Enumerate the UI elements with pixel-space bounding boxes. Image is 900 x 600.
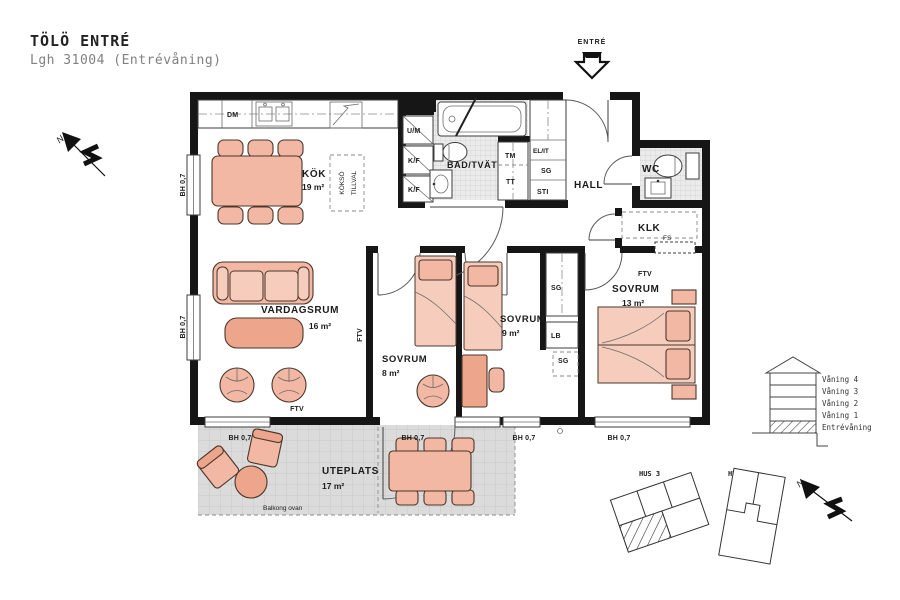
- floorplan-drawing: DM U/M K/F K/F KÖK 19 m²: [0, 0, 900, 600]
- tall-cabinets: U/M K/F K/F: [403, 116, 433, 202]
- bedroom-9: SOVRUM 9 m²: [462, 262, 545, 407]
- ftv-label: FTV: [638, 271, 652, 278]
- window: [595, 417, 690, 427]
- window: [187, 295, 200, 360]
- dining-table: [212, 156, 302, 206]
- linen-closet-label: LB: [551, 333, 561, 340]
- window: [205, 417, 270, 427]
- balcony-above-note: Balkong ovan: [263, 505, 303, 512]
- living-room: VARDAGSRUM 16 m² FTV FTV: [213, 262, 364, 413]
- dining-chair: [248, 140, 273, 157]
- tillval-label: TILLVAL: [351, 170, 358, 195]
- coffee-table: [225, 318, 303, 348]
- stove-icon: [330, 102, 362, 128]
- dining-table-set: [212, 140, 303, 224]
- livingroom-area: 16 m²: [309, 321, 331, 331]
- toilet-icon: [654, 153, 699, 179]
- bedroom13-label: SOVRUM: [612, 284, 660, 295]
- sofa: [213, 262, 313, 304]
- nightstand: [672, 385, 696, 399]
- patio-area: 17 m²: [322, 481, 344, 491]
- bed-single: [464, 262, 502, 350]
- bh-label: BH 0,7: [402, 435, 425, 442]
- kitchen-island-option: KÖKSÖ TILLVAL: [330, 155, 364, 211]
- dining-chair: [218, 207, 243, 224]
- patio-dining-set: [389, 438, 474, 505]
- toilet-icon: [434, 143, 467, 162]
- hus3-siteplan: HUS 3: [610, 470, 708, 552]
- bh-label: BH 0,7: [180, 174, 187, 197]
- building-section-legend: Våning 4 Våning 3 Våning 2 Våning 1 Entr…: [752, 357, 872, 446]
- bed-single: [415, 256, 456, 346]
- wardrobe-label: SG: [541, 168, 552, 175]
- pillow: [666, 311, 690, 341]
- klk-door: [589, 214, 615, 240]
- patio-chair: [247, 428, 283, 467]
- floor-label: Våning 4: [822, 375, 859, 384]
- pillow: [666, 349, 690, 379]
- bh-label: BH 0,7: [180, 316, 187, 339]
- ftv-label: FTV: [357, 328, 364, 342]
- dining-chair: [248, 207, 273, 224]
- kitchen-area: 19 m²: [302, 182, 324, 192]
- dining-chair: [218, 140, 243, 157]
- bedroom9-label: SOVRUM: [500, 314, 545, 325]
- sti-label: STI: [537, 189, 549, 196]
- desk-chair: [489, 368, 504, 392]
- patio-dining-table: [389, 451, 471, 491]
- klk-label: KLK: [638, 223, 661, 234]
- patio-dining-chair: [452, 490, 474, 505]
- wc-door: [604, 156, 632, 184]
- drain-mark: [558, 429, 563, 434]
- wardrobe-label: SG: [551, 285, 562, 292]
- kokso-label: KÖKSÖ: [338, 171, 346, 194]
- fridge-label: K/F: [408, 158, 420, 165]
- bedroom-8: SOVRUM 8 m²: [382, 256, 456, 407]
- ftv-label: FTV: [290, 406, 304, 413]
- wc-label: WC: [642, 164, 660, 175]
- washbasin: [430, 170, 452, 198]
- bh-label: BH 0,7: [229, 435, 252, 442]
- kitchen-label: KÖK: [302, 167, 326, 180]
- bath-label: BAD/TVÄTT: [447, 160, 503, 170]
- entry-door: [566, 100, 608, 142]
- washer-label: TM: [505, 153, 516, 160]
- bedroom9-area: 9 m²: [502, 328, 520, 338]
- wardrobe-label: SG: [558, 358, 569, 365]
- floor-label: Våning 2: [822, 399, 858, 408]
- entry-label: ENTRÉ: [578, 37, 607, 46]
- dishwasher-label: DM: [227, 112, 238, 119]
- floor-label: Entrévåning: [822, 423, 872, 432]
- armchair: [272, 368, 306, 402]
- hall-closets: EL/IT SG STI: [530, 100, 566, 200]
- laundry-closet: TM TT: [498, 142, 528, 200]
- armchair: [417, 375, 449, 407]
- current-floor-highlight: [770, 421, 816, 433]
- window: [187, 155, 200, 215]
- hus4-siteplan: HUS 4: [719, 468, 785, 564]
- hall-label: HALL: [574, 180, 603, 191]
- floor-label: Våning 3: [822, 387, 858, 396]
- bedroom8-area: 8 m²: [382, 368, 400, 378]
- north-compass-icon: N: [794, 477, 852, 521]
- bedroom-13: FTV SOVRUM 13 m²: [598, 271, 696, 399]
- livingroom-label: VARDAGSRUM: [261, 305, 339, 316]
- el-it-label: EL/IT: [533, 148, 549, 155]
- dryer-label: TT: [506, 179, 515, 186]
- window: [503, 417, 540, 427]
- dining-chair: [278, 207, 303, 224]
- bedroom8-label: SOVRUM: [382, 354, 427, 365]
- hus3-label: HUS 3: [639, 470, 660, 478]
- bed-double: [598, 307, 695, 383]
- bathtub: [438, 98, 526, 136]
- patio-dining-chair: [424, 490, 446, 505]
- bh-label: BH 0,7: [608, 435, 631, 442]
- fridge-label: K/F: [408, 187, 420, 194]
- hallway-wardrobes: SG LB SG: [546, 253, 578, 376]
- bh-label: BH 0,7: [513, 435, 536, 442]
- patio-label: UTEPLATS: [322, 466, 379, 477]
- microwave-label: U/M: [407, 128, 420, 135]
- fs-label: FS: [663, 235, 672, 242]
- patio-round-table: [235, 466, 267, 498]
- north-compass-icon: N: [54, 132, 105, 176]
- floorplan-page: TÖLÖ ENTRÉ Lgh 31004 (Entrévåning): [0, 0, 900, 600]
- washbasin: [645, 178, 671, 198]
- patio-dining-chair: [396, 490, 418, 505]
- floor-label: Våning 1: [822, 411, 858, 420]
- dining-chair: [278, 140, 303, 157]
- window: [455, 417, 500, 427]
- armchair: [220, 368, 254, 402]
- desk: [462, 355, 487, 407]
- entry-marker: ENTRÉ: [576, 37, 608, 78]
- nightstand: [672, 290, 696, 304]
- bedroom8-door: [378, 253, 420, 295]
